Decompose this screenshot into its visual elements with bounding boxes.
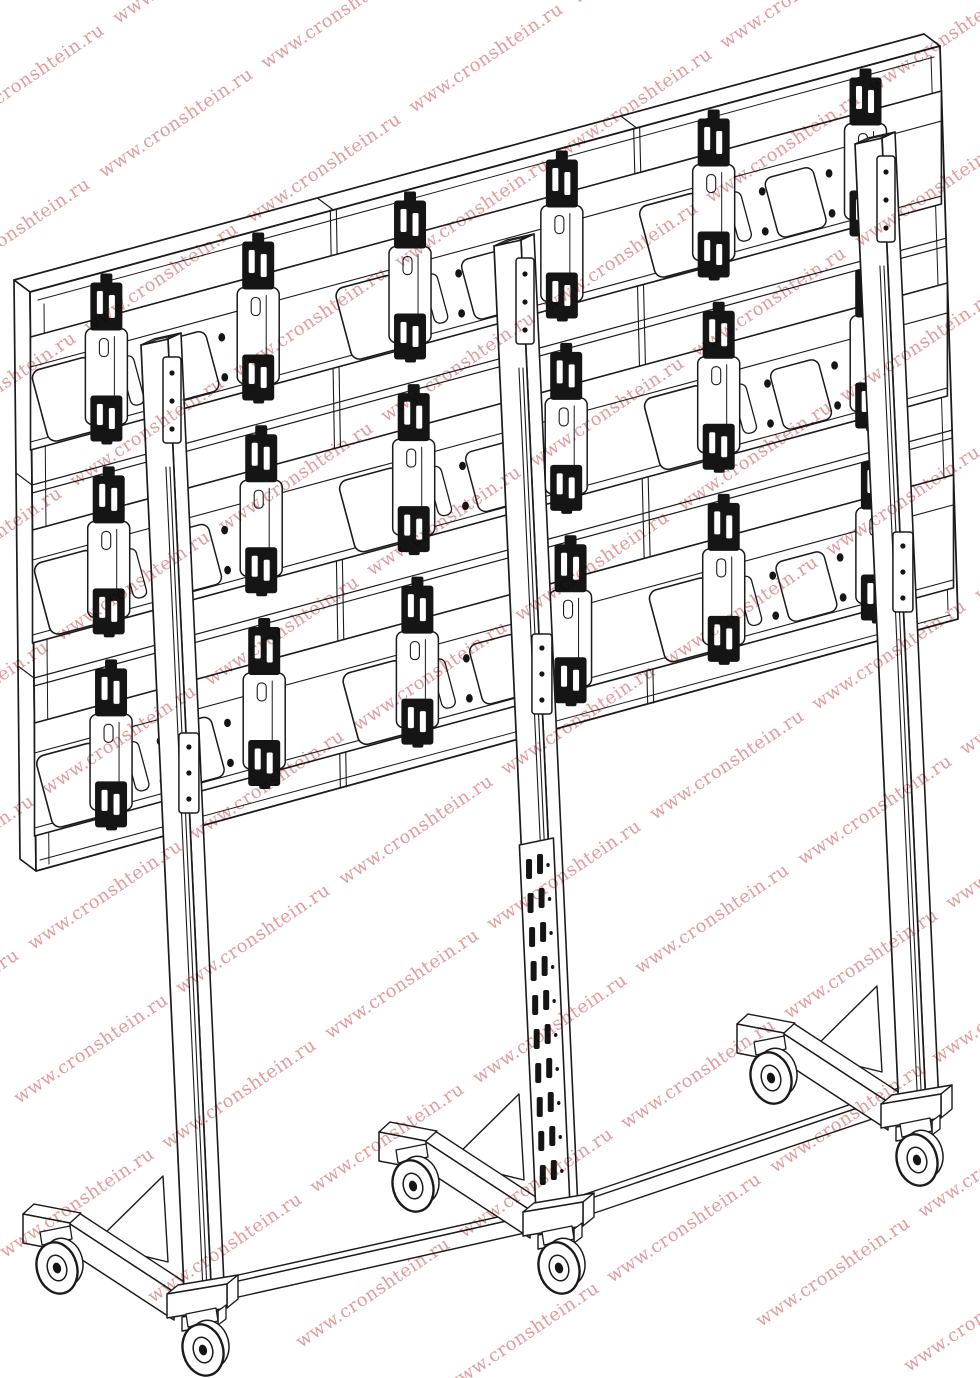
technical-drawing-canvas: www.cronshtein.ruwww.cronshtein.ruwww.cr… <box>0 0 980 1378</box>
base-frame <box>23 986 900 1320</box>
line-art-drawing <box>0 0 980 1378</box>
